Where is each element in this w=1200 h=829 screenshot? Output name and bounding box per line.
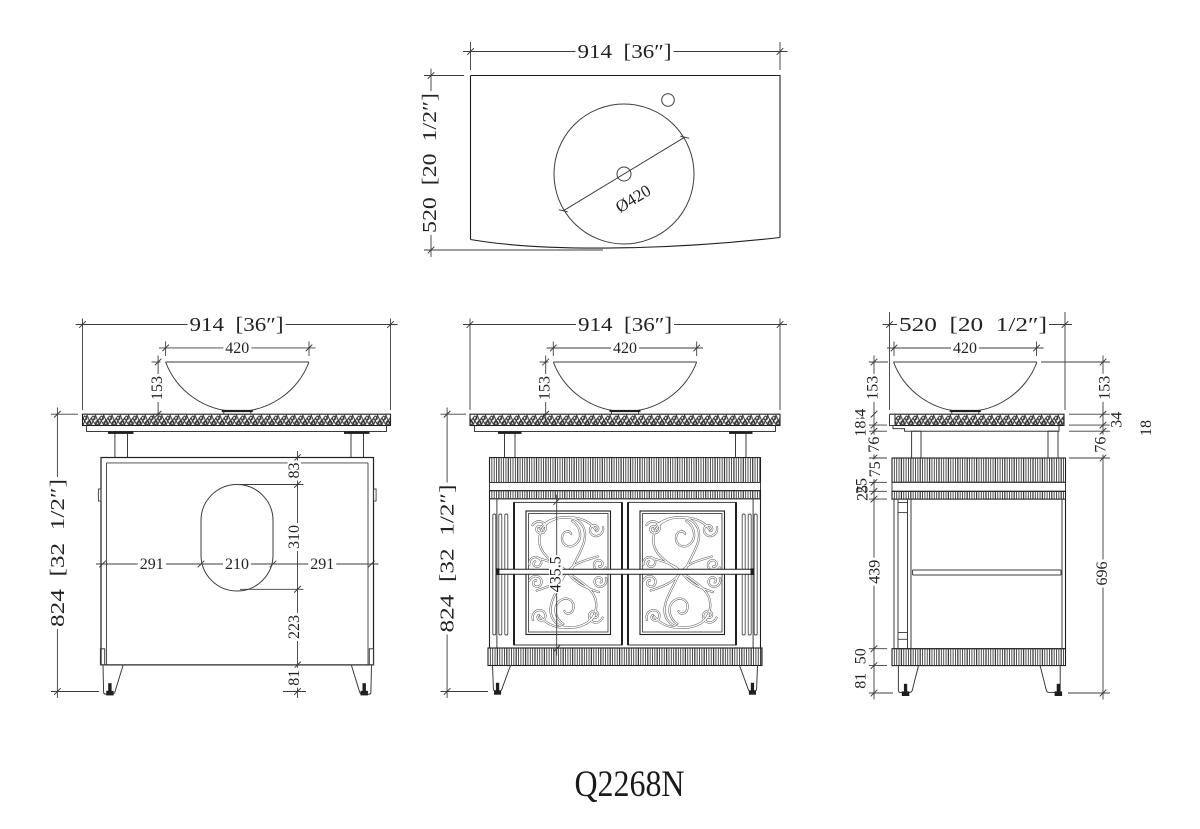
- svg-text:420: 420: [613, 340, 637, 357]
- svg-text:76: 76: [866, 437, 883, 453]
- svg-text:824 [32 1/2″]: 824 [32 1/2″]: [437, 485, 459, 633]
- svg-text:310: 310: [286, 525, 303, 549]
- svg-text:914 [36″]: 914 [36″]: [578, 314, 672, 336]
- svg-text:81: 81: [286, 670, 303, 686]
- svg-text:439: 439: [866, 560, 883, 584]
- svg-text:824 [32 1/2″]: 824 [32 1/2″]: [47, 479, 69, 627]
- svg-text:420: 420: [953, 340, 977, 357]
- svg-text:223: 223: [286, 615, 303, 639]
- svg-text:75: 75: [867, 461, 884, 477]
- svg-text:291: 291: [310, 556, 334, 573]
- svg-text:83: 83: [286, 463, 303, 479]
- svg-text:420: 420: [225, 340, 249, 357]
- svg-text:291: 291: [140, 556, 164, 573]
- svg-text:153: 153: [1096, 376, 1113, 400]
- svg-text:25: 25: [854, 485, 871, 501]
- svg-text:520 [20 1/2″]: 520 [20 1/2″]: [899, 314, 1047, 336]
- svg-text:153: 153: [864, 376, 881, 400]
- svg-text:914 [36″]: 914 [36″]: [578, 41, 672, 63]
- svg-text:210: 210: [225, 556, 249, 573]
- svg-text:18: 18: [1138, 420, 1155, 436]
- svg-text:34: 34: [1108, 412, 1125, 428]
- svg-text:81: 81: [853, 673, 870, 689]
- svg-text:18: 18: [853, 421, 870, 437]
- svg-text:435.5: 435.5: [548, 556, 565, 592]
- svg-text:50: 50: [853, 648, 870, 664]
- svg-text:520 [20 1/2″]: 520 [20 1/2″]: [419, 93, 441, 233]
- svg-text:153: 153: [149, 376, 166, 400]
- svg-text:153: 153: [537, 376, 554, 400]
- svg-text:696: 696: [1094, 562, 1111, 586]
- svg-text:914 [36″]: 914 [36″]: [190, 314, 284, 336]
- svg-text:Q2268N: Q2268N: [575, 764, 685, 805]
- svg-text:76: 76: [1093, 437, 1110, 453]
